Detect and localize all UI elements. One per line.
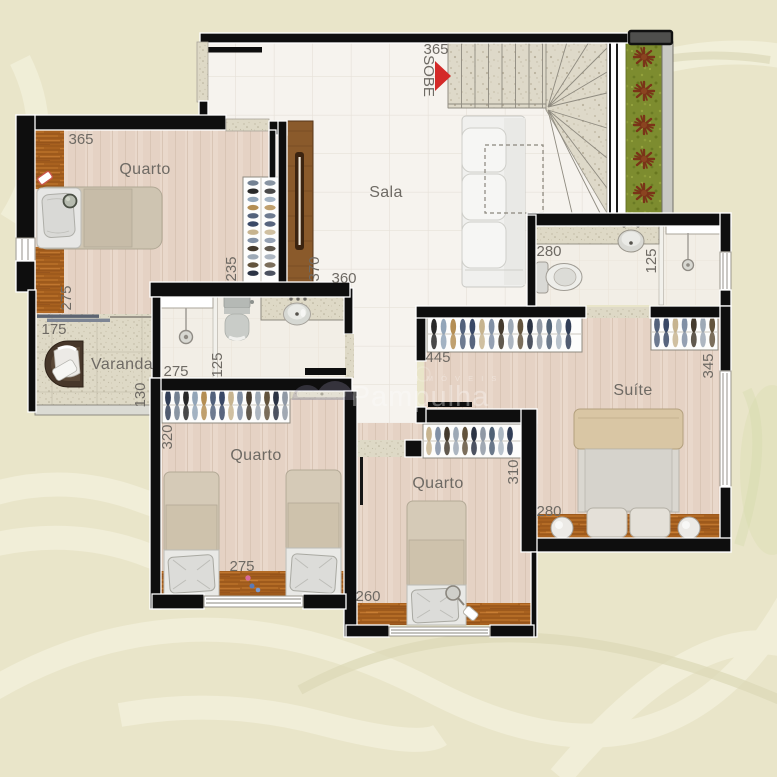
svg-text:Pampulha: Pampulha xyxy=(351,381,490,413)
svg-text:275: 275 xyxy=(58,285,75,310)
svg-text:SOBE: SOBE xyxy=(420,55,437,97)
svg-text:345: 345 xyxy=(700,353,717,378)
svg-text:370: 370 xyxy=(306,256,323,281)
svg-text:275: 275 xyxy=(163,363,188,380)
svg-text:Suíte: Suíte xyxy=(613,382,652,399)
svg-text:235: 235 xyxy=(223,256,240,281)
svg-text:280: 280 xyxy=(536,503,561,520)
svg-text:175: 175 xyxy=(41,321,66,338)
svg-text:125: 125 xyxy=(643,248,660,273)
svg-text:Quarto: Quarto xyxy=(119,161,170,178)
svg-text:130: 130 xyxy=(132,382,149,407)
svg-text:Quarto: Quarto xyxy=(412,475,463,492)
svg-text:Sala: Sala xyxy=(369,184,403,201)
svg-text:445: 445 xyxy=(425,349,450,366)
svg-text:260: 260 xyxy=(355,588,380,605)
svg-text:310: 310 xyxy=(505,459,522,484)
svg-text:275: 275 xyxy=(229,558,254,575)
svg-text:125: 125 xyxy=(209,352,226,377)
svg-text:360: 360 xyxy=(331,270,356,287)
svg-text:Varanda: Varanda xyxy=(91,356,153,373)
svg-text:365: 365 xyxy=(68,131,93,148)
svg-text:320: 320 xyxy=(159,424,176,449)
svg-text:280: 280 xyxy=(536,243,561,260)
svg-text:Quarto: Quarto xyxy=(230,447,281,464)
